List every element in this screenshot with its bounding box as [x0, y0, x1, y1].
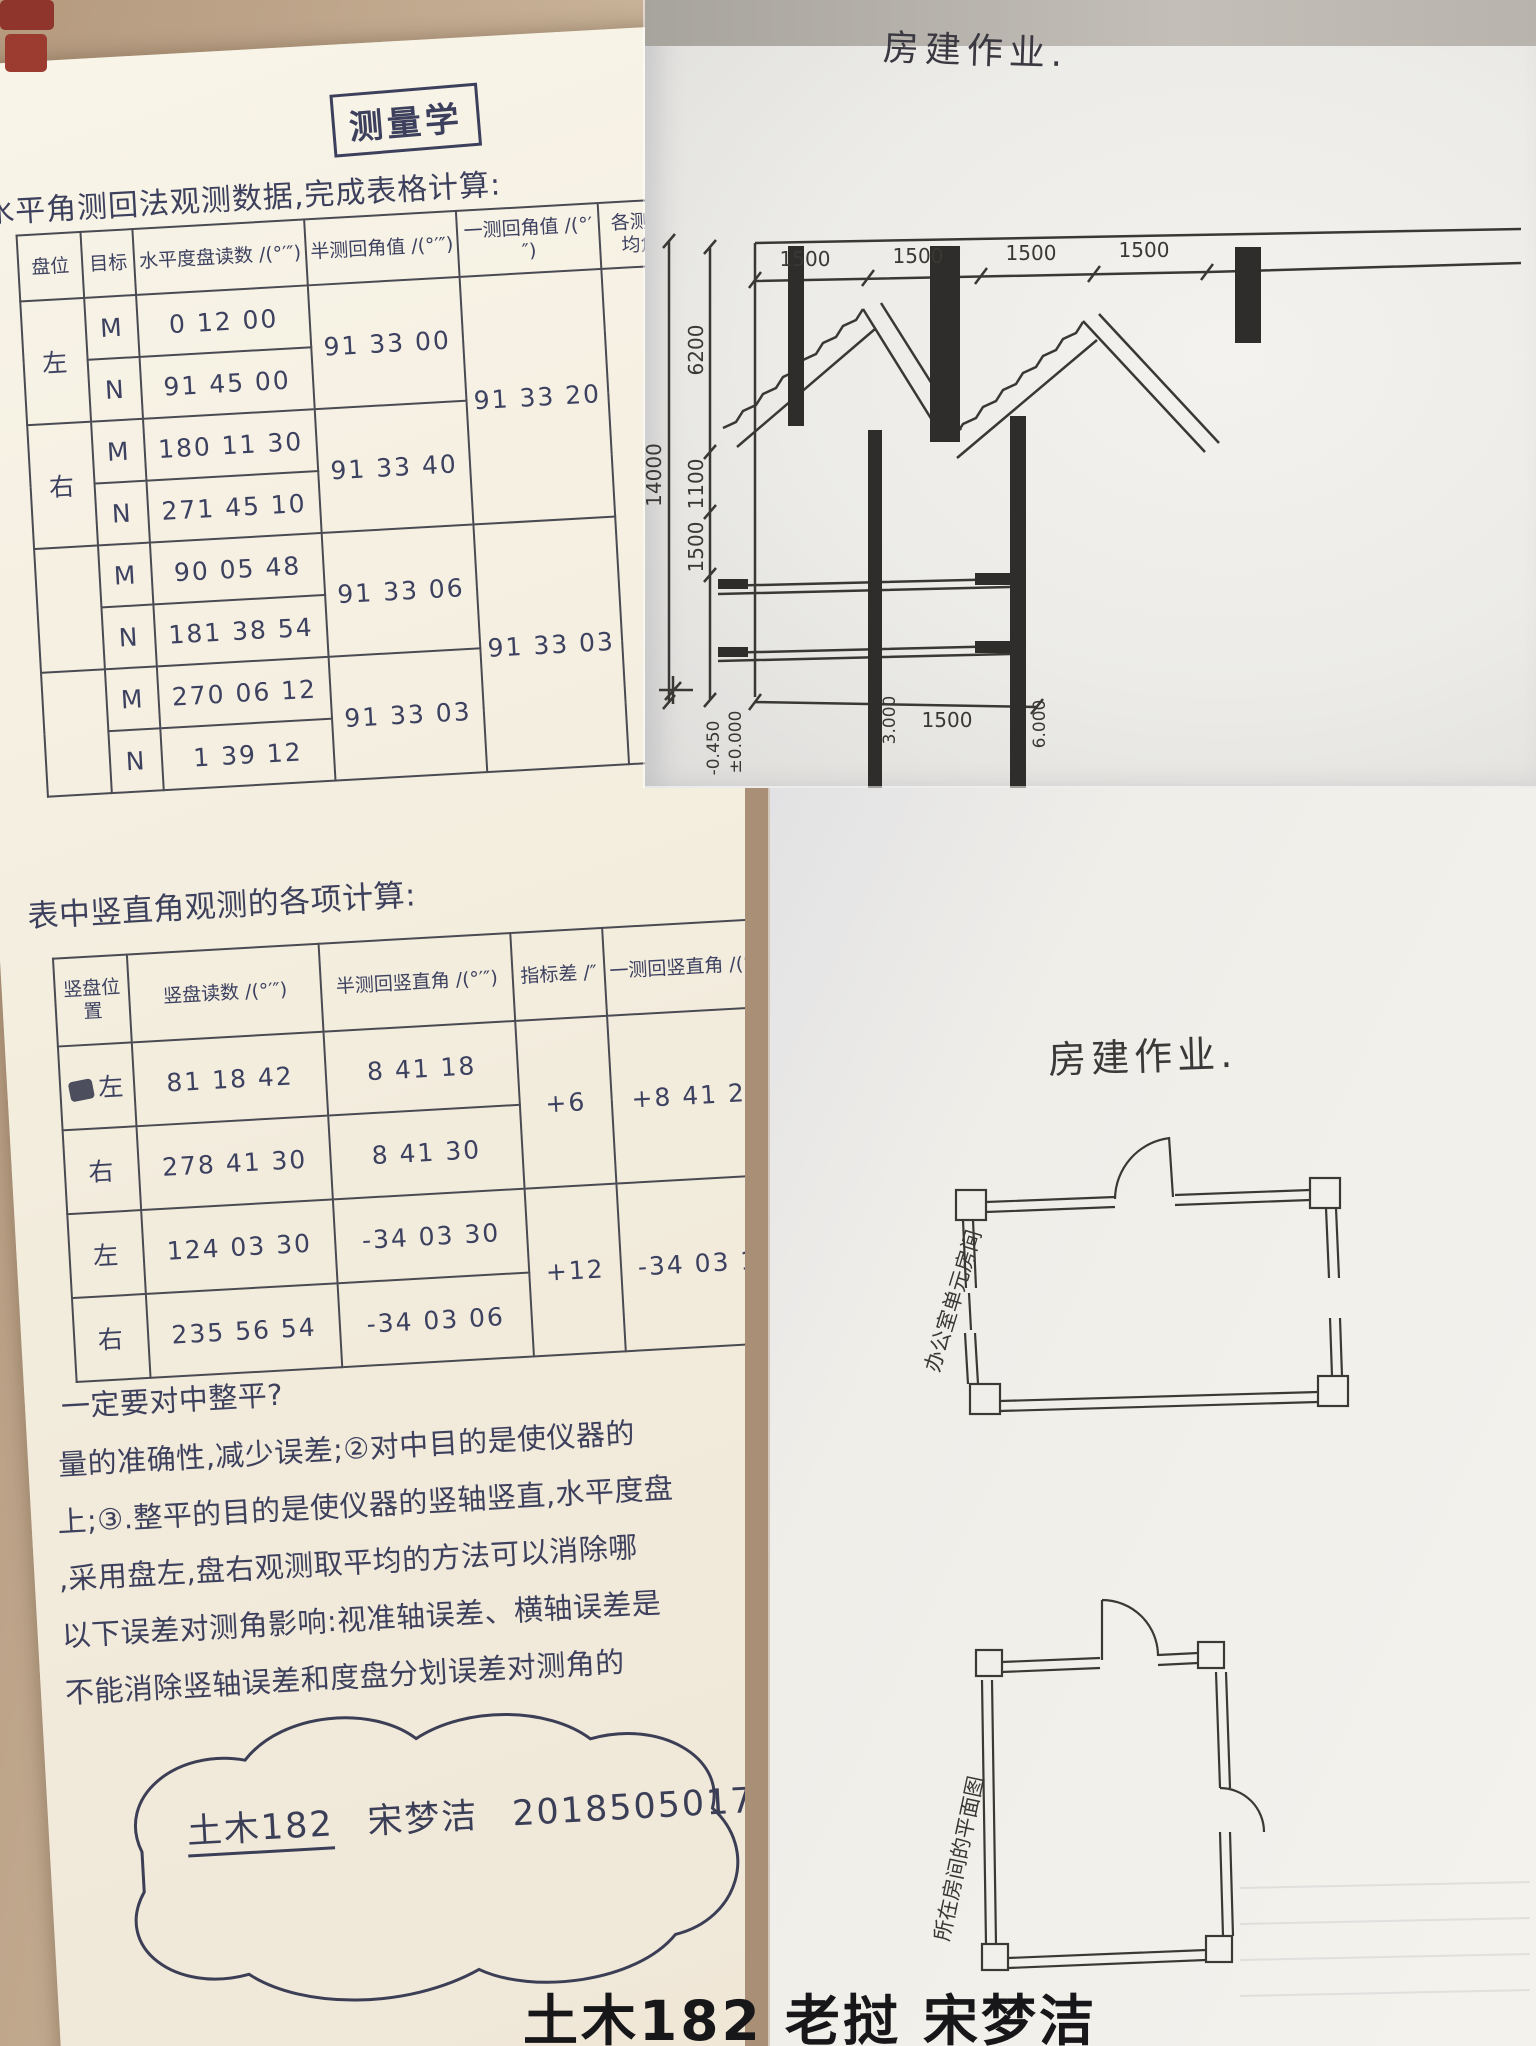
plan-sheet-title: 房建作业.	[1047, 1023, 1238, 1085]
half-vertical-cell: -34 03 06	[338, 1273, 534, 1368]
reading-cell: 1 39 12	[160, 719, 335, 791]
pan-position-cell: 左	[20, 298, 91, 425]
dimension-label: 1500	[1119, 238, 1170, 262]
index-error-cell: +6	[515, 1016, 616, 1189]
section-drawing-photo: 房建作业.	[645, 0, 1536, 788]
disc-position-cell: 右	[63, 1126, 142, 1214]
red-book-edge-mark	[0, 0, 54, 30]
subject-title-box: 测量学	[329, 83, 482, 158]
dimension-label: 14000	[645, 443, 666, 507]
target-cell: N	[88, 357, 143, 422]
dimension-label: 1500	[893, 244, 944, 268]
one-round-cell: 91 33 03	[473, 517, 629, 773]
disc-position-cell: 左	[58, 1042, 137, 1130]
disc-position-cell: 右	[72, 1294, 151, 1382]
half-round-cell: 91 33 00	[308, 277, 467, 409]
reading-cell: 0 12 00	[136, 285, 311, 357]
survey-photo: 测量学 水平角测回法观测数据,完成表格计算: 表中竖直角观测的各项计算: 一定要…	[0, 0, 745, 2046]
dimension-label: 1500	[780, 247, 831, 271]
t1-header-cell: 一测回角值 /(°′″)	[456, 203, 601, 277]
half-vertical-cell: 8 41 18	[323, 1021, 519, 1116]
half-vertical-cell: 8 41 30	[328, 1105, 524, 1200]
horizontal-angle-table: 盘位目标水平度盘读数 /(°′″)半测回角值 /(°′″)一测回角值 /(°′″…	[16, 196, 730, 797]
level-label: 3.000	[880, 696, 900, 745]
red-book-edge-mark	[5, 34, 47, 72]
reading-cell: 90 05 48	[150, 533, 325, 605]
photo-seam	[645, 786, 1536, 788]
between-line: 表中竖直角观测的各项计算:	[26, 869, 417, 936]
dimension-label: 1500	[684, 522, 708, 573]
t1-header-cell: 盘位	[17, 232, 85, 301]
collage-stage: 测量学 水平角测回法观测数据,完成表格计算: 表中竖直角观测的各项计算: 一定要…	[0, 0, 1536, 2046]
t1-header-cell: 目标	[80, 229, 136, 298]
target-cell: N	[101, 604, 156, 669]
vertical-angle-table: 竖盘位置竖盘读数 /(°′″)半测回竖直角 /(°′″)指标差 /″一测回竖直角…	[52, 917, 745, 1383]
half-round-cell: 91 33 03	[329, 648, 488, 780]
reading-cell: 270 06 12	[157, 657, 332, 729]
t1-header-cell: 半测回角值 /(°′″)	[304, 211, 459, 285]
scribble-mark	[68, 1078, 95, 1102]
reading-cell: 235 56 54	[146, 1283, 342, 1378]
t2-header-cell: 一测回竖直角 /(°′″)	[602, 918, 745, 1015]
floor-plan-photo: 房建作业.	[770, 788, 1536, 2046]
target-cell: N	[108, 728, 163, 793]
t1-header-cell: 水平度盘读数 /(°′″)	[132, 219, 307, 294]
target-cell: N	[95, 481, 150, 546]
reading-cell: 180 11 30	[143, 409, 318, 481]
level-label: 6.000	[1030, 700, 1050, 749]
bottom-caption: 土木182 老挝 宋梦洁	[430, 1976, 1190, 2046]
desk-edge-band	[645, 0, 1536, 46]
t2-header-cell: 竖盘位置	[53, 955, 132, 1047]
reading-cell: 91 45 00	[140, 347, 315, 419]
student-name: 宋梦洁	[366, 1796, 479, 1842]
photo-seam	[768, 788, 770, 2046]
dimension-label: 6200	[684, 325, 708, 376]
floor-plan-svg: 办公室单元房间 所在房间的平面图	[770, 788, 1536, 2046]
pan-position-cell	[41, 669, 112, 796]
reading-cell: 124 03 30	[141, 1199, 337, 1294]
plan2-room-label: 所在房间的平面图	[930, 1774, 988, 1943]
dimension-label: 1500	[922, 708, 973, 732]
one-round-vertical-cell: +8 41 24	[607, 1006, 745, 1183]
dimension-label: 1500	[1006, 241, 1057, 265]
target-cell: M	[84, 295, 139, 360]
section-drawing-svg: 1500 1500 1500 1500 6200 1100 1500 14000…	[645, 46, 1536, 788]
photo-seam	[643, 0, 645, 788]
horizontal-angle-table-slot	[0, 17, 745, 66]
half-vertical-cell: -34 03 30	[333, 1189, 529, 1284]
level-label: ±0.000	[726, 711, 746, 774]
survey-paper: 测量学 水平角测回法观测数据,完成表格计算: 表中竖直角观测的各项计算: 一定要…	[0, 17, 745, 2046]
half-round-cell: 91 33 40	[315, 401, 474, 533]
level-label: -0.450	[704, 721, 724, 776]
reading-cell: 181 38 54	[153, 595, 328, 667]
pan-position-cell: 右	[27, 422, 98, 549]
vertical-angle-table-slot	[0, 17, 745, 66]
target-cell: M	[105, 666, 160, 731]
target-cell: M	[98, 543, 153, 608]
reading-cell: 81 18 42	[132, 1032, 328, 1127]
t2-header-cell: 指标差 /″	[510, 928, 607, 1021]
t2-header-cell: 半测回竖直角 /(°′″)	[319, 933, 516, 1032]
half-round-cell: 91 33 06	[322, 524, 481, 656]
reading-cell: 278 41 30	[136, 1116, 332, 1211]
index-error-cell: +12	[525, 1184, 626, 1357]
reading-cell: 271 45 10	[146, 471, 321, 543]
target-cell: M	[91, 419, 146, 484]
class-label: 土木182	[186, 1804, 335, 1857]
pan-position-cell	[34, 545, 105, 672]
disc-position-cell: 左	[67, 1210, 146, 1298]
one-round-cell: 91 33 20	[460, 269, 616, 525]
one-round-vertical-cell: -34 03 18	[616, 1174, 745, 1351]
t2-header-cell: 竖盘读数 /(°′″)	[127, 944, 324, 1043]
dimension-label: 1100	[684, 459, 708, 510]
